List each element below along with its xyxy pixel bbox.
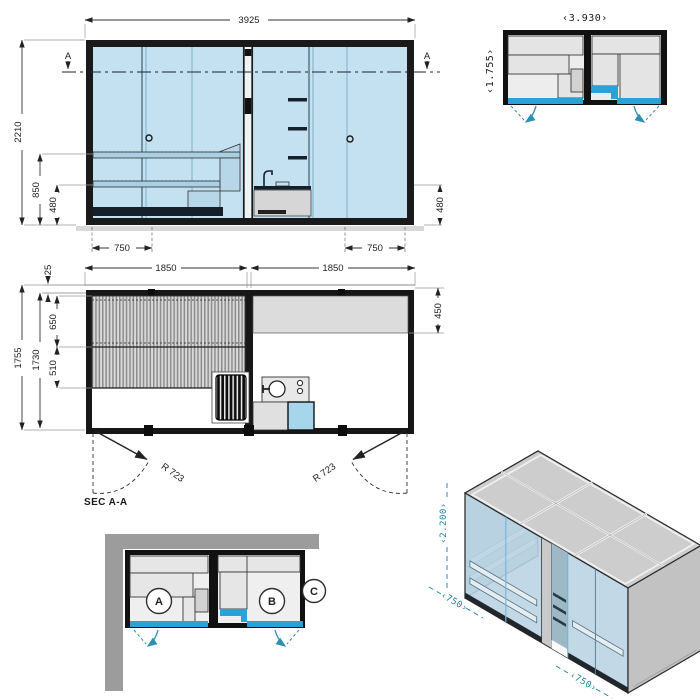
frame-left (86, 40, 93, 225)
plan-depth-total-label: 1755 (13, 347, 24, 368)
elevation-view: 3925 A A (13, 15, 446, 255)
building-wall-left (105, 534, 123, 691)
plan-wall-right (408, 290, 414, 434)
sauna-heater (212, 372, 249, 423)
panel-c-label: C (310, 586, 318, 598)
cabinet-plan (253, 402, 289, 430)
frame-top (86, 40, 414, 47)
sink-unit-plan (262, 377, 309, 402)
wall-shelf (288, 156, 307, 160)
drawing-canvas: 3925 A A (0, 0, 700, 700)
plan-depth-inner-label: 1730 (31, 349, 42, 370)
wall-shelf (288, 127, 307, 131)
roof-edge-offset-label: 25 (43, 265, 54, 276)
door-swing-left: R 723 (93, 431, 186, 493)
overview-width-label: ‹3.930› (562, 13, 608, 24)
overview-plan: ‹3.930› ‹1.755› (485, 13, 667, 122)
counter-top (254, 186, 311, 190)
frame-right (407, 40, 414, 225)
technical-drawing-sheet: 3925 A A (0, 0, 700, 700)
room-a-label: A (155, 596, 163, 608)
elevation-width-label: 3925 (238, 15, 259, 26)
section-title: SEC A-A (84, 497, 128, 508)
counter-depth-label: 450 (433, 303, 444, 319)
door-radius-left-label: R 723 (159, 461, 186, 485)
frame-bottom (86, 218, 414, 225)
overview-depth-label: ‹1.755› (485, 48, 496, 94)
plan-view: 1850 1850 (13, 263, 444, 509)
bench-lower-depth-label: 510 (48, 360, 59, 376)
isometric-view: ‹2.200› ‹750› ‹750› (429, 451, 700, 698)
shower-tray (288, 402, 314, 430)
plan-left-width-label: 1850 (155, 263, 176, 274)
counter-plan (253, 296, 408, 333)
knob (297, 388, 302, 393)
divider-lock (245, 98, 252, 114)
room-b-label: B (268, 596, 276, 608)
bench-upper-depth-label: 650 (48, 314, 59, 330)
door-radius-right-label: R 723 (311, 461, 338, 485)
section-marker-left: A (65, 51, 72, 62)
elevation-height-label: 2210 (13, 121, 24, 142)
building-wall-top (105, 534, 319, 549)
door-right-width-label: 750 (367, 243, 383, 254)
plan-right-width-label: 1850 (322, 263, 343, 274)
washbasin (269, 381, 285, 397)
iso-height-label: ‹2.200› (439, 502, 449, 543)
plan-wall-left (86, 290, 92, 434)
door-left-width-label: 750 (114, 243, 130, 254)
iso-divider (542, 538, 552, 649)
iso-door-right-label: ‹750› (568, 671, 599, 694)
placement-door-arrows (134, 630, 299, 646)
bench-low-right-label: 480 (435, 197, 446, 213)
knob (297, 380, 302, 385)
bench-high-label: 850 (31, 182, 42, 198)
door-swing-right: R 723 (311, 431, 407, 493)
placement-plan: A B C (105, 534, 326, 691)
wall-shelf (288, 98, 307, 102)
overview-door-arrows (511, 106, 659, 122)
bench-low-label: 480 (48, 197, 59, 213)
section-marker-right: A (424, 51, 431, 62)
ground-line (76, 226, 424, 231)
divider-top-fitting (245, 49, 252, 56)
